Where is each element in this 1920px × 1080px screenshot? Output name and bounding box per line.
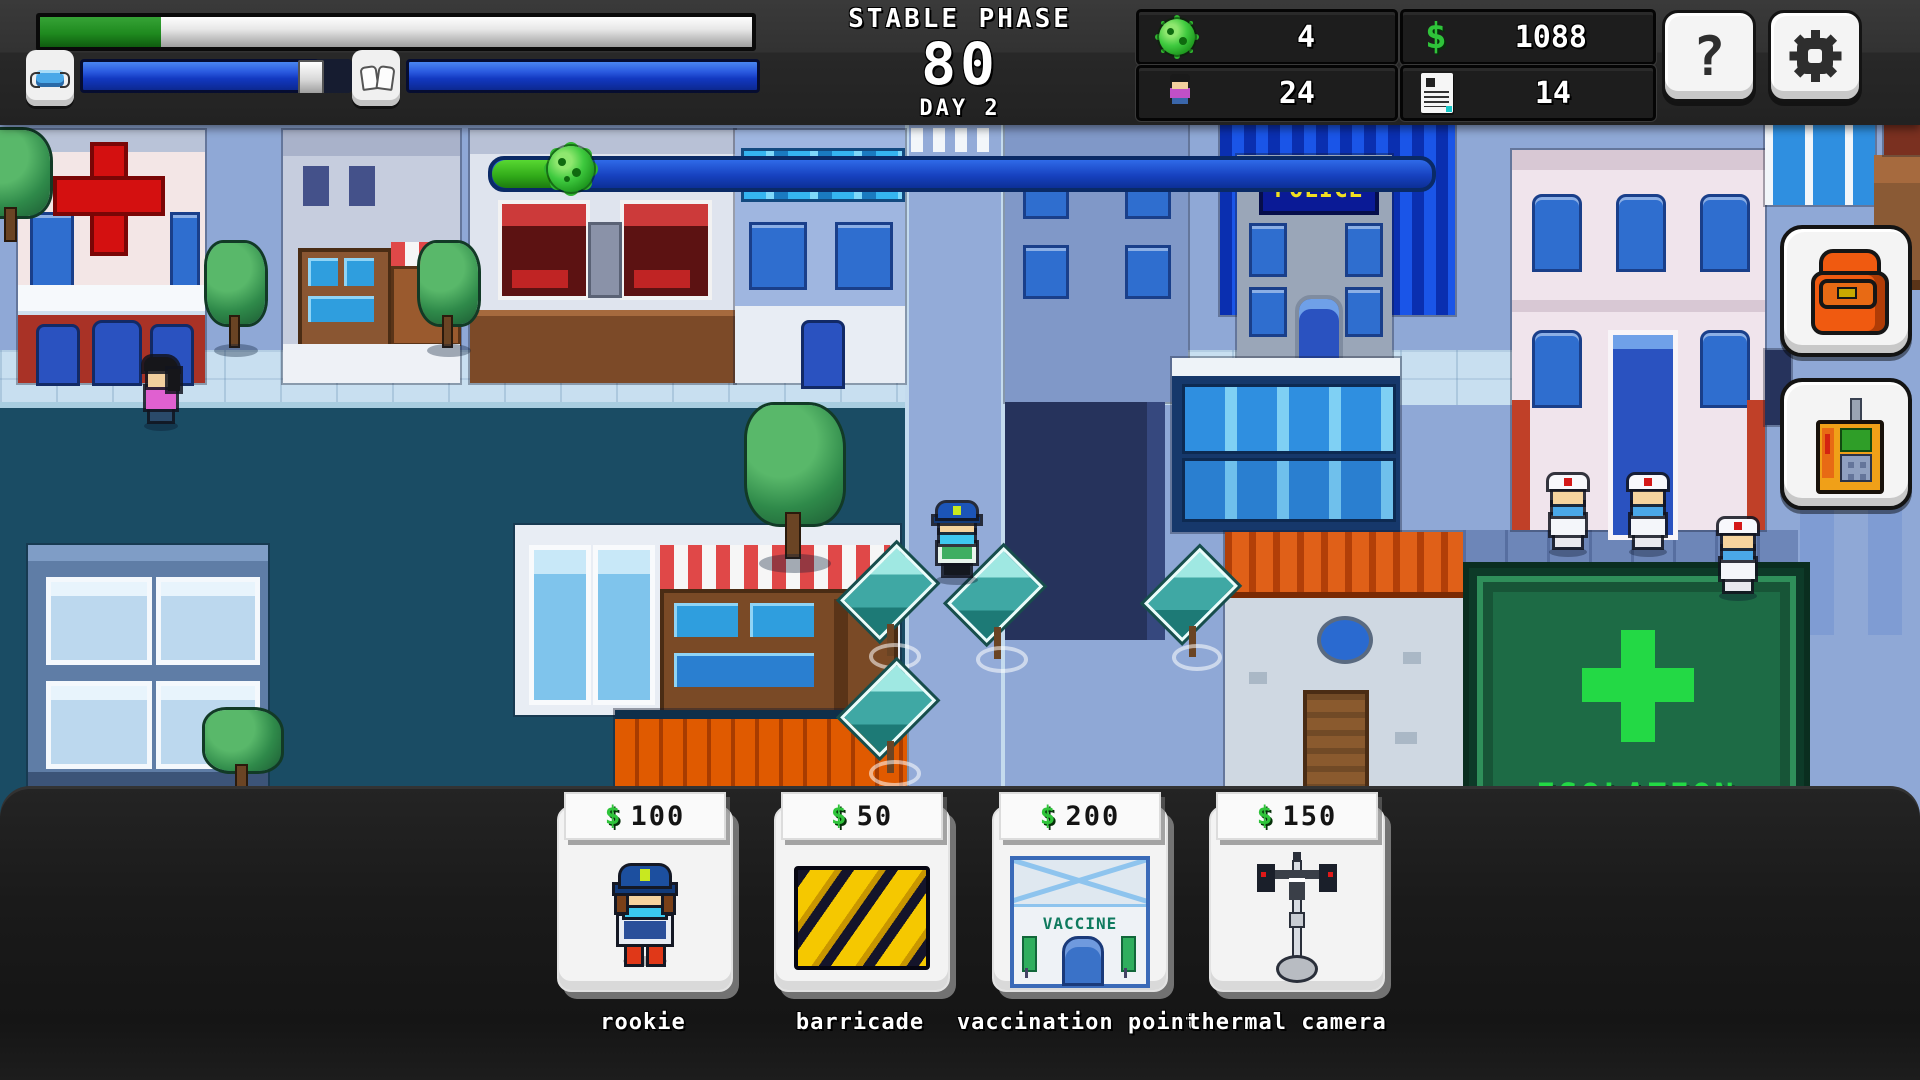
window <box>1532 194 1582 272</box>
tree-trunk <box>787 514 799 557</box>
pine-canopy <box>844 548 932 636</box>
rookie-sprite <box>605 860 685 976</box>
roof <box>283 130 460 156</box>
mask-strap-right <box>60 72 70 88</box>
police-door <box>1295 295 1343 366</box>
health-bar <box>36 13 756 51</box>
price-tag-thermal-camera: $ 150 <box>1216 792 1378 840</box>
price-tag-barricade: $ 50 <box>781 792 943 840</box>
card-label-vaccination-point: vaccination point <box>957 1010 1199 1035</box>
cornice <box>1512 300 1765 312</box>
pine-halo <box>976 646 1029 673</box>
speckle <box>1403 652 1421 664</box>
barricade-sprite <box>794 866 930 970</box>
tree <box>207 243 265 355</box>
mask-button[interactable] <box>26 50 74 106</box>
shop-panel <box>0 786 1920 1080</box>
infection-progress-bar <box>488 156 1436 192</box>
tree-trunk <box>444 317 451 346</box>
roof <box>470 130 735 154</box>
health-bar-fill <box>40 17 161 47</box>
tree-trunk <box>231 317 238 346</box>
hand-wash-slider[interactable] <box>406 59 760 93</box>
hands-icon <box>375 65 395 91</box>
police-window <box>1249 287 1287 337</box>
pine-halo <box>869 760 922 787</box>
big-window <box>46 577 152 665</box>
window <box>1616 194 1666 272</box>
legs <box>1555 535 1581 547</box>
pine-tree <box>856 550 926 670</box>
hospital-door <box>36 324 80 386</box>
money-count: 1088 <box>1337 20 1653 55</box>
crosswalk <box>911 128 999 152</box>
window-grid <box>593 545 655 705</box>
detector-button[interactable] <box>1780 378 1912 510</box>
price-value: 50 <box>857 801 894 832</box>
tv-screen <box>308 258 338 286</box>
price-value: 150 <box>1282 801 1337 832</box>
inventory-button[interactable] <box>1780 225 1912 357</box>
round-window <box>1317 616 1373 664</box>
price-tag-vaccination-point: $ 200 <box>999 792 1161 840</box>
window <box>1532 330 1582 408</box>
police-officer <box>928 503 986 581</box>
shelf-box <box>674 603 738 637</box>
storefront-top <box>1172 358 1400 376</box>
face <box>1723 535 1753 548</box>
hospital-counter <box>18 285 205 315</box>
police-window <box>1345 287 1383 337</box>
tree-canopy <box>747 405 843 524</box>
pillar <box>1512 400 1530 530</box>
pillar <box>1747 400 1765 530</box>
speckle <box>1395 732 1417 744</box>
price-value: 200 <box>1065 801 1120 832</box>
tree <box>747 405 843 570</box>
red-awning <box>502 204 586 226</box>
legs <box>1635 535 1661 547</box>
legs <box>150 407 172 421</box>
police-window <box>1249 223 1287 277</box>
tree <box>205 710 281 795</box>
torso <box>1721 559 1755 579</box>
hand-wash-fill <box>406 59 760 93</box>
door <box>801 320 845 389</box>
glass-panes <box>1182 384 1396 454</box>
hair-flick <box>168 369 180 391</box>
hand-wash-button[interactable] <box>352 50 400 106</box>
mask-slider-handle[interactable] <box>298 60 324 93</box>
window <box>835 222 893 290</box>
glass-storefront <box>1172 358 1400 532</box>
window-slit <box>349 166 375 206</box>
window <box>1023 245 1069 299</box>
torso <box>938 543 976 563</box>
mask-strap-left <box>30 72 40 88</box>
torso <box>1551 515 1585 535</box>
glass-panes <box>1182 458 1396 522</box>
pine-halo <box>1172 644 1222 671</box>
tree-canopy <box>0 130 50 216</box>
legs <box>944 563 970 575</box>
mask-level-slider[interactable] <box>80 59 352 93</box>
red-table <box>634 270 690 288</box>
storefront-topright <box>1765 125 1875 205</box>
reports-count: 14 <box>1321 76 1653 111</box>
mask-level-fill <box>80 59 319 93</box>
shelf-box <box>750 603 814 637</box>
window <box>1125 245 1171 299</box>
tree-canopy <box>205 710 281 771</box>
help-button[interactable]: ? <box>1662 10 1756 102</box>
orange-roof-house <box>1225 532 1463 795</box>
torso <box>1631 515 1665 535</box>
tree <box>420 243 478 355</box>
shop-shelf <box>298 248 392 348</box>
face <box>1633 491 1663 504</box>
price-value: 100 <box>630 801 685 832</box>
counter <box>470 310 735 383</box>
cap-badge <box>953 506 961 515</box>
door <box>588 222 622 298</box>
pine-canopy <box>1148 552 1233 637</box>
pine-tree <box>856 667 926 787</box>
citizen-woman <box>138 353 184 427</box>
shop-window-red <box>620 200 712 300</box>
vaccine-sign-text: VACCINE <box>1014 914 1146 933</box>
tv-screen <box>344 258 374 286</box>
nurse <box>1623 473 1673 553</box>
card-label-barricade: barricade <box>796 1010 924 1035</box>
game-screen: POLICE IS <box>0 0 1920 1080</box>
pine-tree <box>1160 553 1226 671</box>
window <box>1700 330 1750 408</box>
settings-button[interactable] <box>1768 10 1862 102</box>
resource-reports: 14 <box>1400 65 1656 121</box>
window <box>1700 194 1750 272</box>
mask <box>940 531 974 544</box>
window-grid <box>529 545 591 705</box>
big-window <box>156 577 260 665</box>
cap-cross <box>1644 478 1652 486</box>
tree <box>0 130 50 250</box>
tree-trunk <box>6 209 15 240</box>
dollar-icon: $ <box>1040 801 1056 831</box>
card-label-thermal-camera: thermal camera <box>1187 1010 1386 1035</box>
price-tag-rookie: $ 100 <box>564 792 726 840</box>
card-label-rookie: rookie <box>600 1010 685 1035</box>
shop-window-red <box>498 200 590 300</box>
pine-canopy <box>844 665 932 753</box>
nurse <box>1543 473 1593 553</box>
hud-top-bar: STABLE PHASE 80 DAY 2 4 24 $ 1088 14 <box>0 0 1920 125</box>
shelf-box <box>674 653 814 687</box>
big-window <box>46 681 152 769</box>
backpack-icon <box>1807 249 1885 333</box>
window-slit <box>303 166 329 206</box>
dollar-icon: $ <box>605 801 621 831</box>
speckle <box>1249 672 1267 684</box>
nurse <box>1713 517 1763 597</box>
dollar-icon: $ <box>831 801 847 831</box>
legs <box>1725 579 1751 591</box>
tv-screen <box>308 296 374 322</box>
face <box>1553 491 1583 504</box>
table-topright <box>1884 125 1920 155</box>
thermal-camera-sprite <box>1249 852 1345 982</box>
infection-progress-virus-marker <box>548 146 594 192</box>
hospital-door <box>92 320 142 386</box>
cap-cross <box>1734 522 1742 530</box>
resource-money: $ 1088 <box>1400 9 1656 65</box>
corrugated-roof <box>1225 532 1463 598</box>
gear-icon <box>1790 31 1840 81</box>
dollar-icon: $ <box>1257 801 1273 831</box>
vaccination-tent-sprite: VACCINE <box>1010 856 1150 988</box>
mask <box>1723 547 1753 560</box>
shelf-post <box>834 599 848 711</box>
window <box>749 222 807 290</box>
red-awning <box>624 204 708 226</box>
question-icon: ? <box>1693 25 1726 88</box>
red-table <box>512 270 568 288</box>
mask <box>1553 503 1583 516</box>
police-window <box>1345 223 1383 277</box>
tree-canopy <box>420 243 478 324</box>
cornice <box>1512 150 1765 170</box>
isolation-cross-bar <box>1582 668 1694 702</box>
hospital-window <box>170 212 200 290</box>
mask <box>1633 503 1663 516</box>
tree-trunk <box>237 766 246 788</box>
roof-edge <box>28 545 268 561</box>
tree-canopy <box>207 243 265 324</box>
radio-detector-icon <box>1810 398 1882 490</box>
cap-cross <box>1564 478 1572 486</box>
red-cross-bar <box>57 180 161 212</box>
